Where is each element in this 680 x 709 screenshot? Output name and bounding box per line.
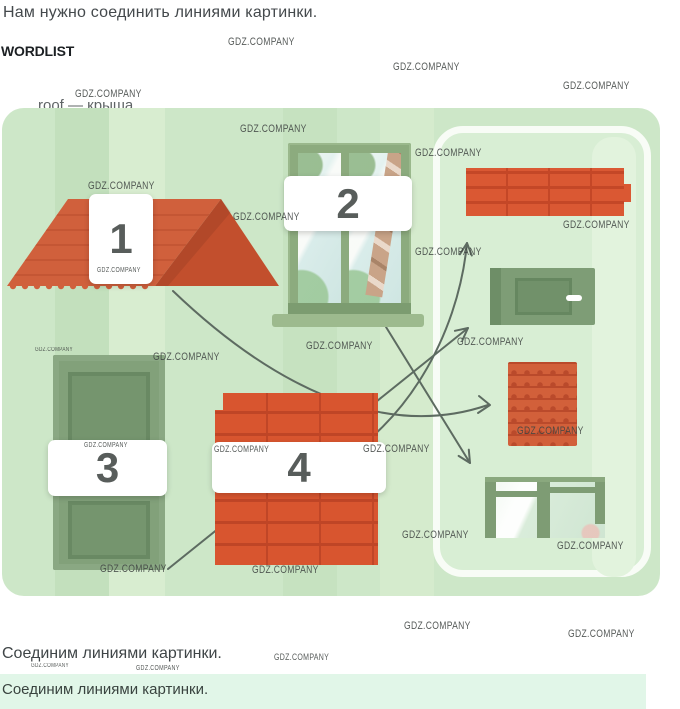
number-label: 2 [336,180,359,228]
window-rail [485,477,605,482]
window-post [595,477,605,524]
door-panel [515,278,572,315]
door-edge [490,268,501,325]
watermark: GDZ.COMPANY [252,564,319,576]
watermark: GDZ.COMPANY [402,529,469,541]
match-item-door [490,268,595,325]
chimney-step [215,393,223,410]
watermark: GDZ.COMPANY [393,61,460,73]
arrowhead-window [459,450,470,463]
window-rail [550,487,605,493]
window-rail [485,491,537,497]
window-post [537,477,550,538]
match-item-brick-wall [466,168,624,216]
watermark: GDZ.COMPANY [557,540,624,552]
worksheet-page: Нам нужно соединить линиями картинки. WO… [0,0,680,709]
watermark: GDZ.COMPANY [563,80,630,92]
door-panel [68,372,150,446]
number-label: 4 [287,444,310,492]
number-card-2: 2 [284,176,412,231]
match-item-window [485,477,605,538]
watermark: GDZ.COMPANY [136,665,180,672]
match-item-brick-wall-step [624,184,631,202]
watermark: GDZ.COMPANY [563,219,630,231]
number-label: 3 [96,444,119,492]
watermark: GDZ.COMPANY [415,246,482,258]
door-panel [68,501,150,559]
watermark: GDZ.COMPANY [568,628,635,640]
watermark: GDZ.COMPANY [97,267,141,274]
watermark: GDZ.COMPANY [84,442,128,449]
watermark: GDZ.COMPANY [100,563,167,575]
watermark: GDZ.COMPANY [415,147,482,159]
window-sill [272,314,424,327]
watermark: GDZ.COMPANY [274,652,329,662]
watermark: GDZ.COMPANY [228,36,295,48]
watermark: GDZ.COMPANY [404,620,471,632]
arrowhead-roof-tiles [478,396,490,413]
watermark: GDZ.COMPANY [153,351,220,363]
watermark: GDZ.COMPANY [457,336,524,348]
watermark: GDZ.COMPANY [233,211,300,223]
watermark: GDZ.COMPANY [214,444,269,454]
watermark: GDZ.COMPANY [240,123,307,135]
watermark: GDZ.COMPANY [75,88,142,100]
watermark: GDZ.COMPANY [31,663,69,669]
watermark: GDZ.COMPANY [517,425,584,437]
watermark: GDZ.COMPANY [35,347,73,353]
watermark: GDZ.COMPANY [88,180,155,192]
watermark: GDZ.COMPANY [363,443,430,455]
number-label: 1 [109,215,132,263]
window-post [485,477,496,538]
door-handle [566,295,582,301]
watermark: GDZ.COMPANY [306,340,373,352]
